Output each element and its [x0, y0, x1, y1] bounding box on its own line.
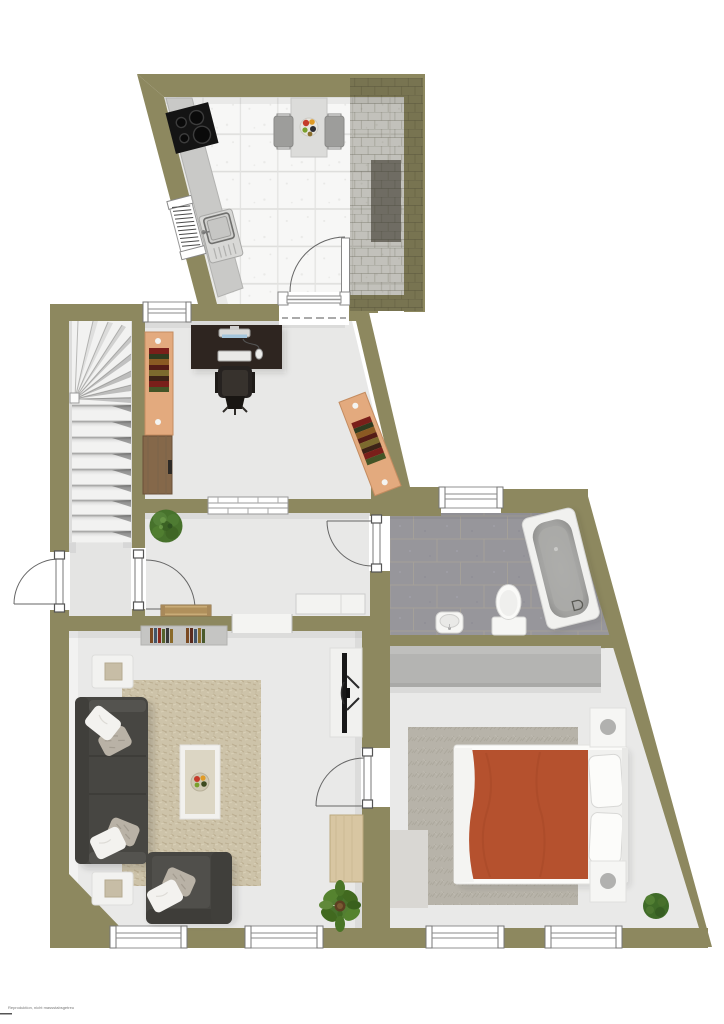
svg-text:Reproduktion, nicht massstabsg: Reproduktion, nicht massstabsgetreu	[8, 1005, 74, 1010]
